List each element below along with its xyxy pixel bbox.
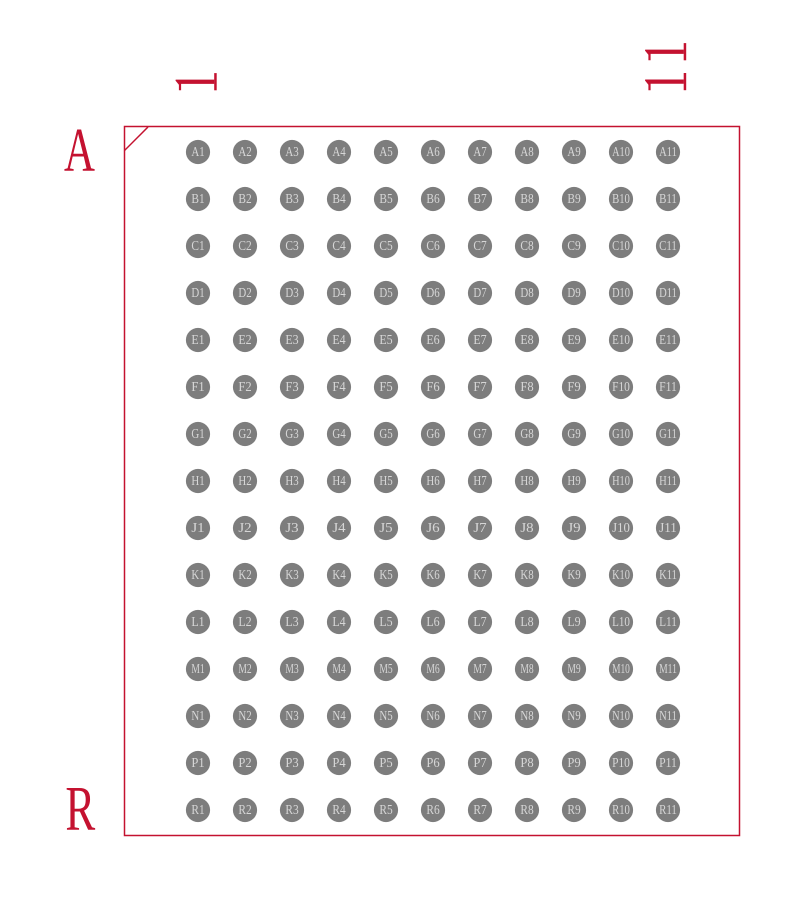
svg-text:R10: R10 <box>612 802 630 817</box>
svg-text:K4: K4 <box>332 567 346 582</box>
svg-text:A5: A5 <box>379 144 393 159</box>
svg-text:R5: R5 <box>379 802 393 817</box>
svg-text:F11: F11 <box>659 379 677 394</box>
svg-text:L4: L4 <box>332 614 346 629</box>
svg-text:R9: R9 <box>567 802 581 817</box>
svg-text:H5: H5 <box>379 473 393 488</box>
svg-text:K7: K7 <box>473 567 487 582</box>
svg-text:N6: N6 <box>426 708 440 723</box>
svg-text:E1: E1 <box>191 332 204 347</box>
svg-text:F2: F2 <box>238 379 251 394</box>
svg-text:B8: B8 <box>520 191 534 206</box>
svg-text:B7: B7 <box>473 191 487 206</box>
svg-text:G5: G5 <box>379 426 393 441</box>
svg-text:C6: C6 <box>426 238 440 253</box>
svg-text:F8: F8 <box>520 379 534 394</box>
svg-text:J6: J6 <box>426 520 440 535</box>
svg-text:D8: D8 <box>520 285 534 300</box>
svg-text:D1: D1 <box>191 285 204 300</box>
svg-text:L2: L2 <box>238 614 251 629</box>
svg-text:A10: A10 <box>612 144 630 159</box>
svg-text:H10: H10 <box>612 473 630 488</box>
svg-text:H4: H4 <box>332 473 346 488</box>
svg-text:K3: K3 <box>285 567 299 582</box>
svg-text:H2: H2 <box>238 473 251 488</box>
svg-text:H6: H6 <box>426 473 440 488</box>
svg-text:K9: K9 <box>567 567 581 582</box>
svg-text:L1: L1 <box>191 614 204 629</box>
svg-text:H8: H8 <box>520 473 534 488</box>
svg-text:A2: A2 <box>238 144 251 159</box>
svg-text:P7: P7 <box>473 755 487 770</box>
svg-text:E8: E8 <box>520 332 534 347</box>
svg-text:L9: L9 <box>567 614 581 629</box>
svg-text:C5: C5 <box>379 238 393 253</box>
svg-text:D3: D3 <box>285 285 299 300</box>
svg-text:G3: G3 <box>285 426 299 441</box>
svg-text:B6: B6 <box>426 191 440 206</box>
svg-text:G11: G11 <box>659 426 677 441</box>
svg-text:L5: L5 <box>379 614 393 629</box>
svg-text:P1: P1 <box>191 755 204 770</box>
svg-text:L7: L7 <box>473 614 487 629</box>
svg-text:M10: M10 <box>612 661 630 676</box>
svg-text:B11: B11 <box>659 191 677 206</box>
svg-text:M3: M3 <box>285 661 299 676</box>
svg-text:N9: N9 <box>567 708 581 723</box>
svg-text:E3: E3 <box>285 332 299 347</box>
svg-text:G9: G9 <box>567 426 581 441</box>
svg-text:N2: N2 <box>238 708 251 723</box>
svg-text:R1: R1 <box>191 802 204 817</box>
svg-text:B4: B4 <box>332 191 346 206</box>
svg-text:P6: P6 <box>426 755 440 770</box>
svg-text:J4: J4 <box>332 520 346 535</box>
svg-text:B3: B3 <box>285 191 299 206</box>
svg-text:P4: P4 <box>332 755 346 770</box>
svg-text:J3: J3 <box>285 520 299 535</box>
svg-text:A3: A3 <box>285 144 299 159</box>
svg-text:E10: E10 <box>612 332 630 347</box>
svg-text:P9: P9 <box>567 755 581 770</box>
svg-text:D2: D2 <box>238 285 251 300</box>
svg-text:M5: M5 <box>379 661 393 676</box>
svg-text:E7: E7 <box>473 332 487 347</box>
svg-text:C2: C2 <box>238 238 251 253</box>
svg-text:N8: N8 <box>520 708 534 723</box>
svg-text:A: A <box>64 115 95 185</box>
svg-text:G8: G8 <box>520 426 534 441</box>
svg-text:G6: G6 <box>426 426 440 441</box>
svg-text:P10: P10 <box>612 755 630 770</box>
svg-text:M11: M11 <box>659 661 677 676</box>
svg-text:C7: C7 <box>473 238 487 253</box>
svg-text:N4: N4 <box>332 708 346 723</box>
svg-text:D4: D4 <box>332 285 346 300</box>
svg-text:F3: F3 <box>285 379 299 394</box>
svg-text:J1: J1 <box>191 520 204 535</box>
svg-text:M6: M6 <box>426 661 440 676</box>
svg-text:F9: F9 <box>567 379 581 394</box>
svg-text:N1: N1 <box>191 708 204 723</box>
svg-text:G2: G2 <box>238 426 251 441</box>
svg-text:R7: R7 <box>473 802 487 817</box>
svg-text:D11: D11 <box>659 285 677 300</box>
svg-text:N7: N7 <box>473 708 487 723</box>
svg-text:G4: G4 <box>332 426 346 441</box>
svg-text:H11: H11 <box>659 473 677 488</box>
svg-text:F7: F7 <box>473 379 487 394</box>
svg-text:C8: C8 <box>520 238 534 253</box>
svg-text:D7: D7 <box>473 285 487 300</box>
svg-text:E5: E5 <box>379 332 393 347</box>
svg-text:M9: M9 <box>567 661 581 676</box>
svg-text:P3: P3 <box>285 755 299 770</box>
svg-text:F5: F5 <box>379 379 393 394</box>
svg-text:R2: R2 <box>238 802 251 817</box>
svg-text:K6: K6 <box>426 567 440 582</box>
svg-text:R11: R11 <box>659 802 677 817</box>
svg-text:A4: A4 <box>332 144 346 159</box>
svg-text:P2: P2 <box>238 755 251 770</box>
svg-text:R4: R4 <box>332 802 346 817</box>
svg-text:H7: H7 <box>473 473 487 488</box>
svg-text:P8: P8 <box>520 755 534 770</box>
svg-text:F10: F10 <box>612 379 630 394</box>
svg-text:C9: C9 <box>567 238 581 253</box>
svg-text:J5: J5 <box>379 520 393 535</box>
svg-text:C1: C1 <box>191 238 204 253</box>
svg-text:R8: R8 <box>520 802 534 817</box>
svg-text:N5: N5 <box>379 708 393 723</box>
svg-text:J7: J7 <box>473 520 487 535</box>
svg-text:N3: N3 <box>285 708 299 723</box>
svg-text:G1: G1 <box>191 426 204 441</box>
svg-text:C3: C3 <box>285 238 299 253</box>
svg-text:G7: G7 <box>473 426 487 441</box>
svg-text:N11: N11 <box>659 708 677 723</box>
svg-text:M7: M7 <box>473 661 487 676</box>
svg-text:A7: A7 <box>473 144 487 159</box>
svg-text:R: R <box>65 773 95 843</box>
svg-text:D5: D5 <box>379 285 393 300</box>
svg-text:E4: E4 <box>332 332 346 347</box>
svg-text:L10: L10 <box>612 614 630 629</box>
svg-text:H9: H9 <box>567 473 581 488</box>
svg-text:E2: E2 <box>238 332 251 347</box>
svg-text:C11: C11 <box>659 238 677 253</box>
svg-text:K5: K5 <box>379 567 393 582</box>
svg-text:K10: K10 <box>612 567 630 582</box>
svg-text:D6: D6 <box>426 285 440 300</box>
svg-text:A1: A1 <box>191 144 204 159</box>
svg-text:A9: A9 <box>567 144 581 159</box>
svg-text:L3: L3 <box>285 614 299 629</box>
svg-text:K1: K1 <box>191 567 204 582</box>
svg-text:P5: P5 <box>379 755 393 770</box>
svg-text:H1: H1 <box>191 473 204 488</box>
svg-text:B5: B5 <box>379 191 393 206</box>
svg-text:B1: B1 <box>191 191 204 206</box>
svg-text:R6: R6 <box>426 802 440 817</box>
svg-text:D10: D10 <box>612 285 630 300</box>
svg-text:D9: D9 <box>567 285 581 300</box>
svg-text:H3: H3 <box>285 473 299 488</box>
svg-text:J11: J11 <box>659 520 677 535</box>
svg-text:E6: E6 <box>426 332 440 347</box>
svg-text:M2: M2 <box>238 661 251 676</box>
svg-text:E9: E9 <box>567 332 581 347</box>
svg-text:M1: M1 <box>191 661 204 676</box>
svg-text:J8: J8 <box>520 520 534 535</box>
svg-text:B2: B2 <box>238 191 251 206</box>
svg-text:A6: A6 <box>426 144 440 159</box>
svg-text:A8: A8 <box>520 144 534 159</box>
svg-text:E11: E11 <box>659 332 677 347</box>
svg-text:L8: L8 <box>520 614 534 629</box>
svg-text:N10: N10 <box>612 708 630 723</box>
svg-text:J2: J2 <box>238 520 251 535</box>
svg-text:B10: B10 <box>612 191 630 206</box>
svg-text:K8: K8 <box>520 567 534 582</box>
svg-text:B9: B9 <box>567 191 581 206</box>
svg-text:A11: A11 <box>659 144 677 159</box>
svg-text:G10: G10 <box>612 426 630 441</box>
svg-text:L11: L11 <box>659 614 677 629</box>
svg-text:K11: K11 <box>659 567 677 582</box>
svg-text:R3: R3 <box>285 802 299 817</box>
svg-text:C10: C10 <box>612 238 630 253</box>
svg-text:P11: P11 <box>659 755 677 770</box>
svg-text:F4: F4 <box>332 379 346 394</box>
svg-text:L6: L6 <box>426 614 440 629</box>
svg-text:F6: F6 <box>426 379 440 394</box>
svg-text:K2: K2 <box>238 567 251 582</box>
svg-text:J9: J9 <box>567 520 581 535</box>
svg-text:F1: F1 <box>191 379 204 394</box>
svg-text:J10: J10 <box>612 520 630 535</box>
svg-text:M4: M4 <box>332 661 346 676</box>
svg-text:C4: C4 <box>332 238 346 253</box>
svg-text:M8: M8 <box>520 661 534 676</box>
